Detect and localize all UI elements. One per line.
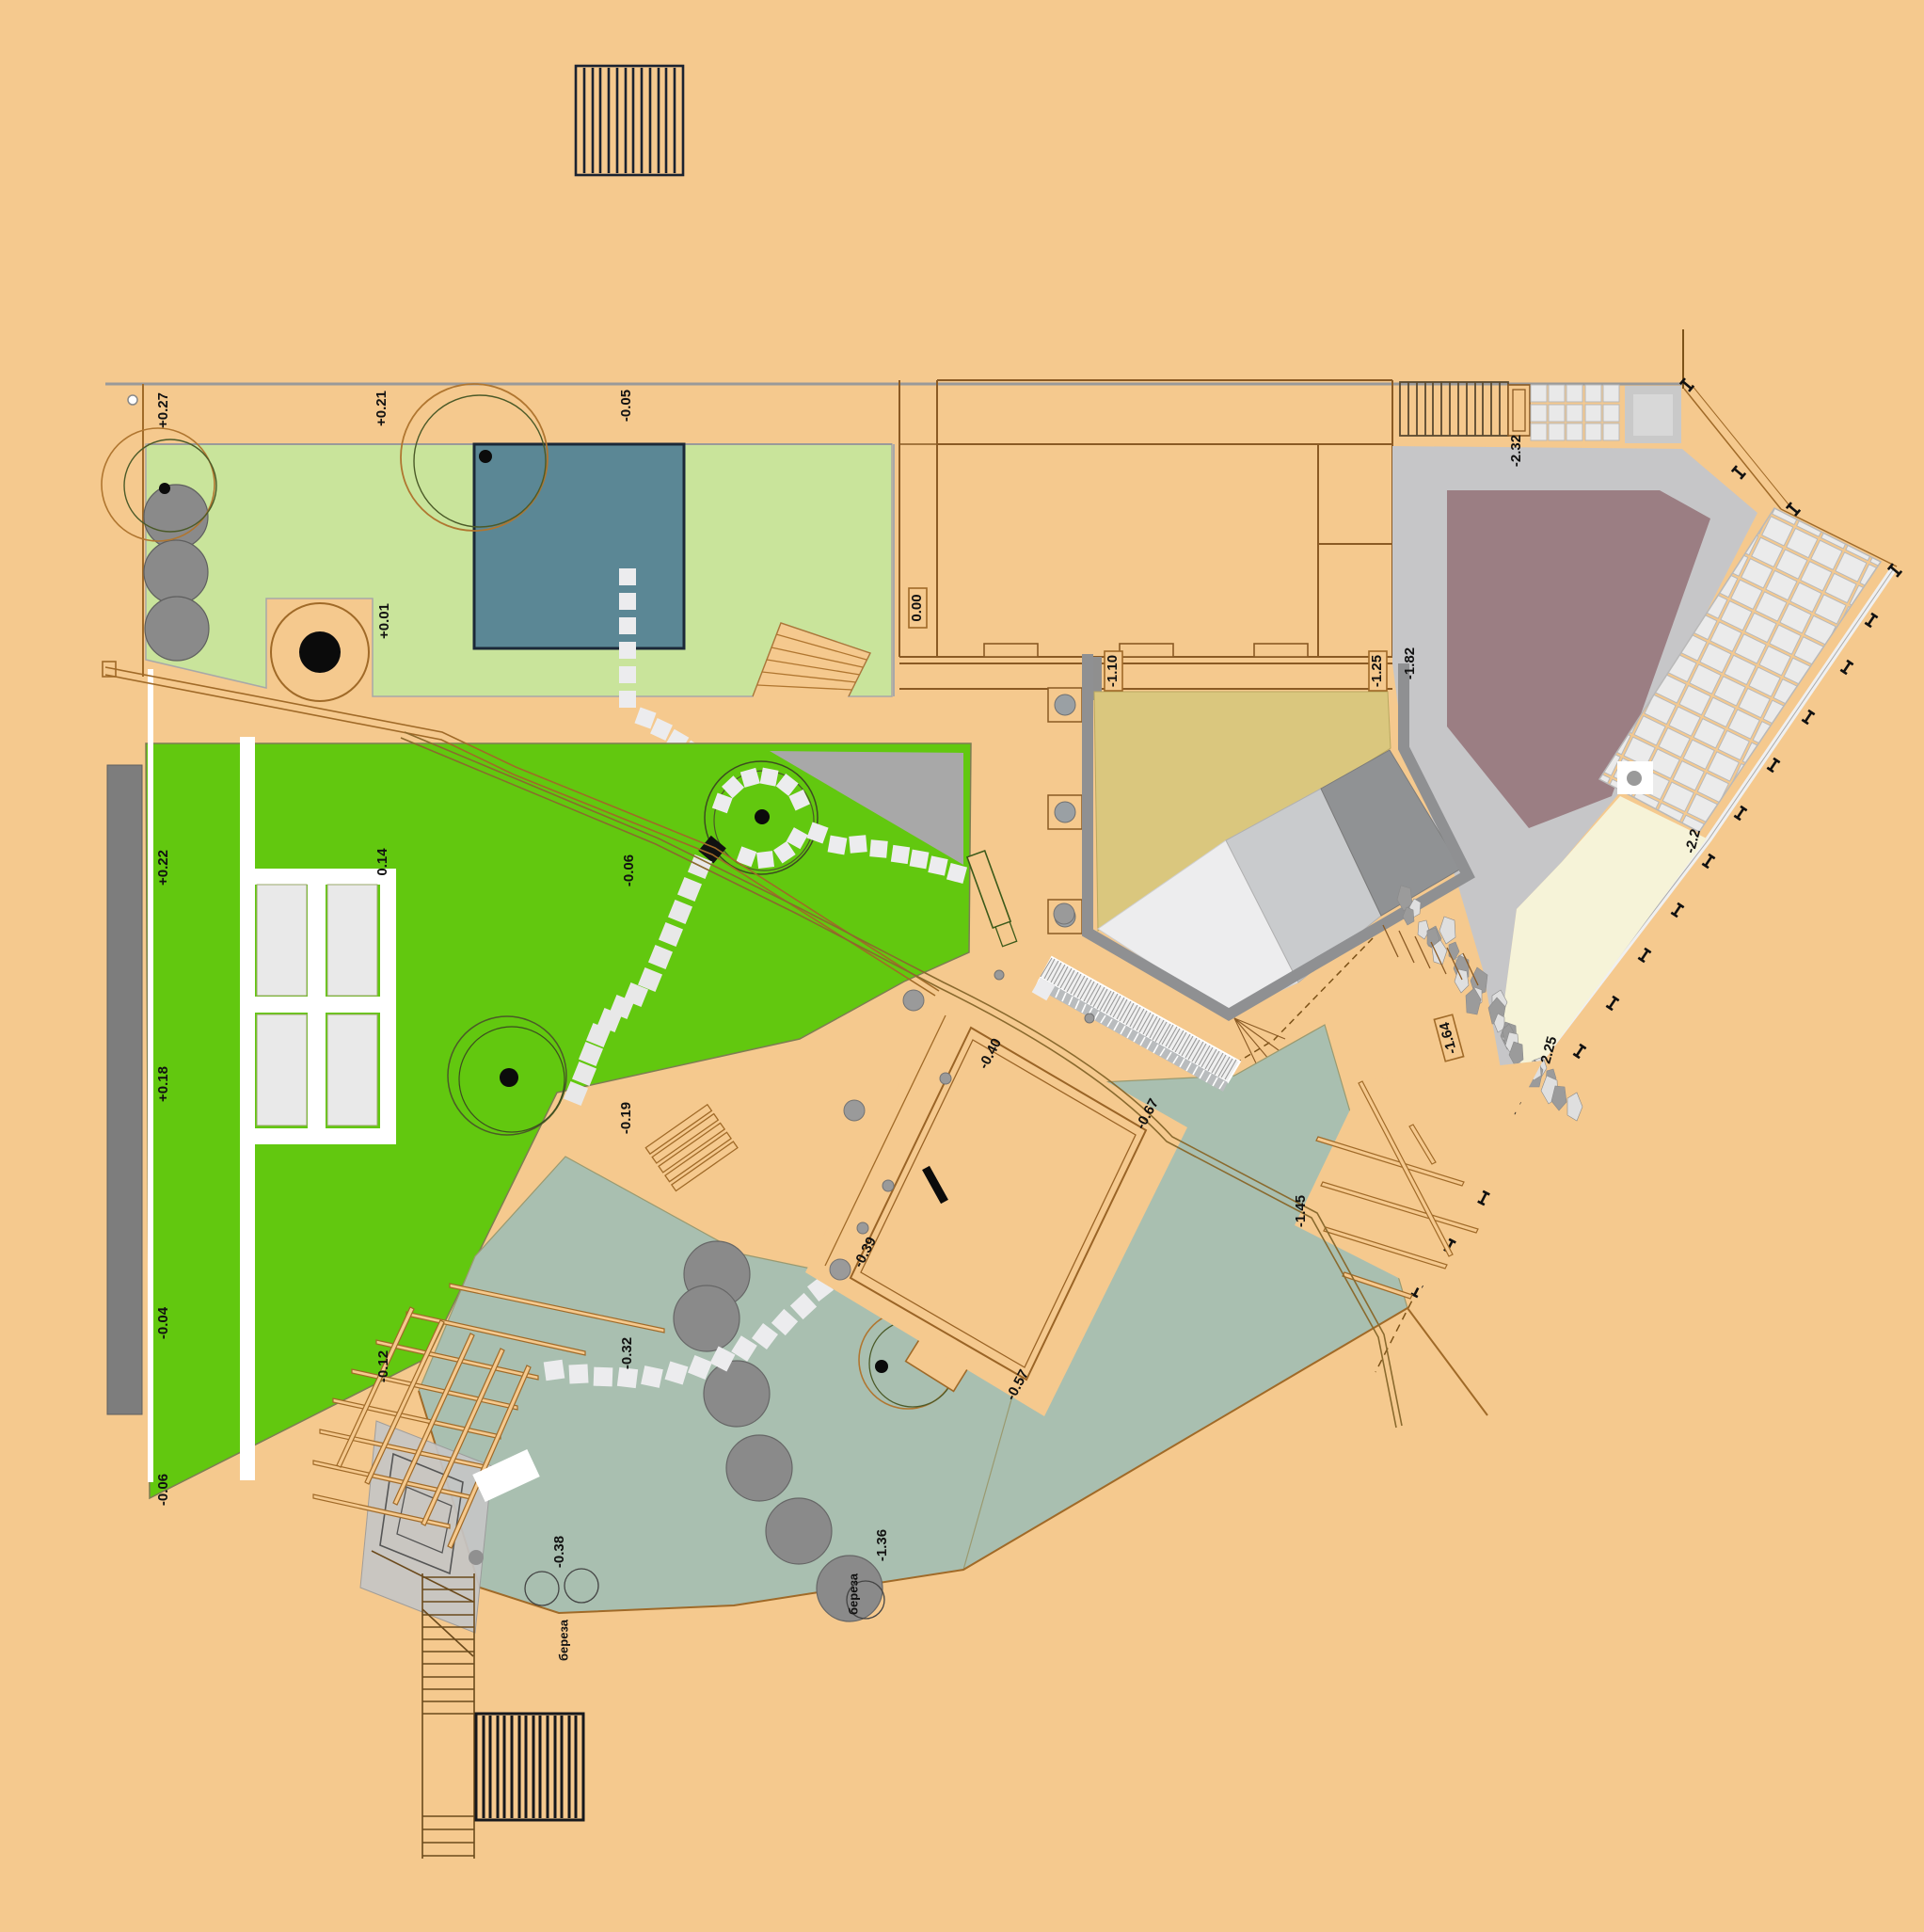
- svg-text:береза: береза: [846, 1573, 860, 1615]
- svg-text:-1.25: -1.25: [1369, 655, 1385, 687]
- svg-text:-0.19: -0.19: [618, 1102, 634, 1134]
- svg-text:+0.18: +0.18: [155, 1066, 171, 1102]
- svg-text:+0.27: +0.27: [155, 392, 171, 428]
- svg-text:+0.22: +0.22: [155, 850, 171, 886]
- svg-text:0.00: 0.00: [909, 594, 925, 621]
- svg-text:-0.04: -0.04: [155, 1306, 171, 1339]
- svg-text:-1.36: -1.36: [874, 1529, 890, 1561]
- svg-text:0.14: 0.14: [374, 848, 390, 876]
- svg-text:-1.10: -1.10: [1105, 655, 1121, 687]
- svg-text:-0.06: -0.06: [155, 1474, 171, 1506]
- svg-text:-1.45: -1.45: [1293, 1195, 1309, 1227]
- svg-text:-0.38: -0.38: [551, 1536, 567, 1568]
- svg-text:-0.05: -0.05: [618, 390, 634, 422]
- svg-text:-1.82: -1.82: [1402, 647, 1418, 679]
- svg-text:-0.12: -0.12: [375, 1350, 391, 1382]
- svg-text:+0.01: +0.01: [376, 603, 392, 639]
- svg-text:+0.21: +0.21: [374, 391, 390, 426]
- svg-text:-2.32: -2.32: [1508, 435, 1524, 467]
- svg-text:береза: береза: [556, 1619, 570, 1661]
- svg-text:-0.06: -0.06: [621, 854, 637, 886]
- svg-text:-0.32: -0.32: [619, 1337, 635, 1369]
